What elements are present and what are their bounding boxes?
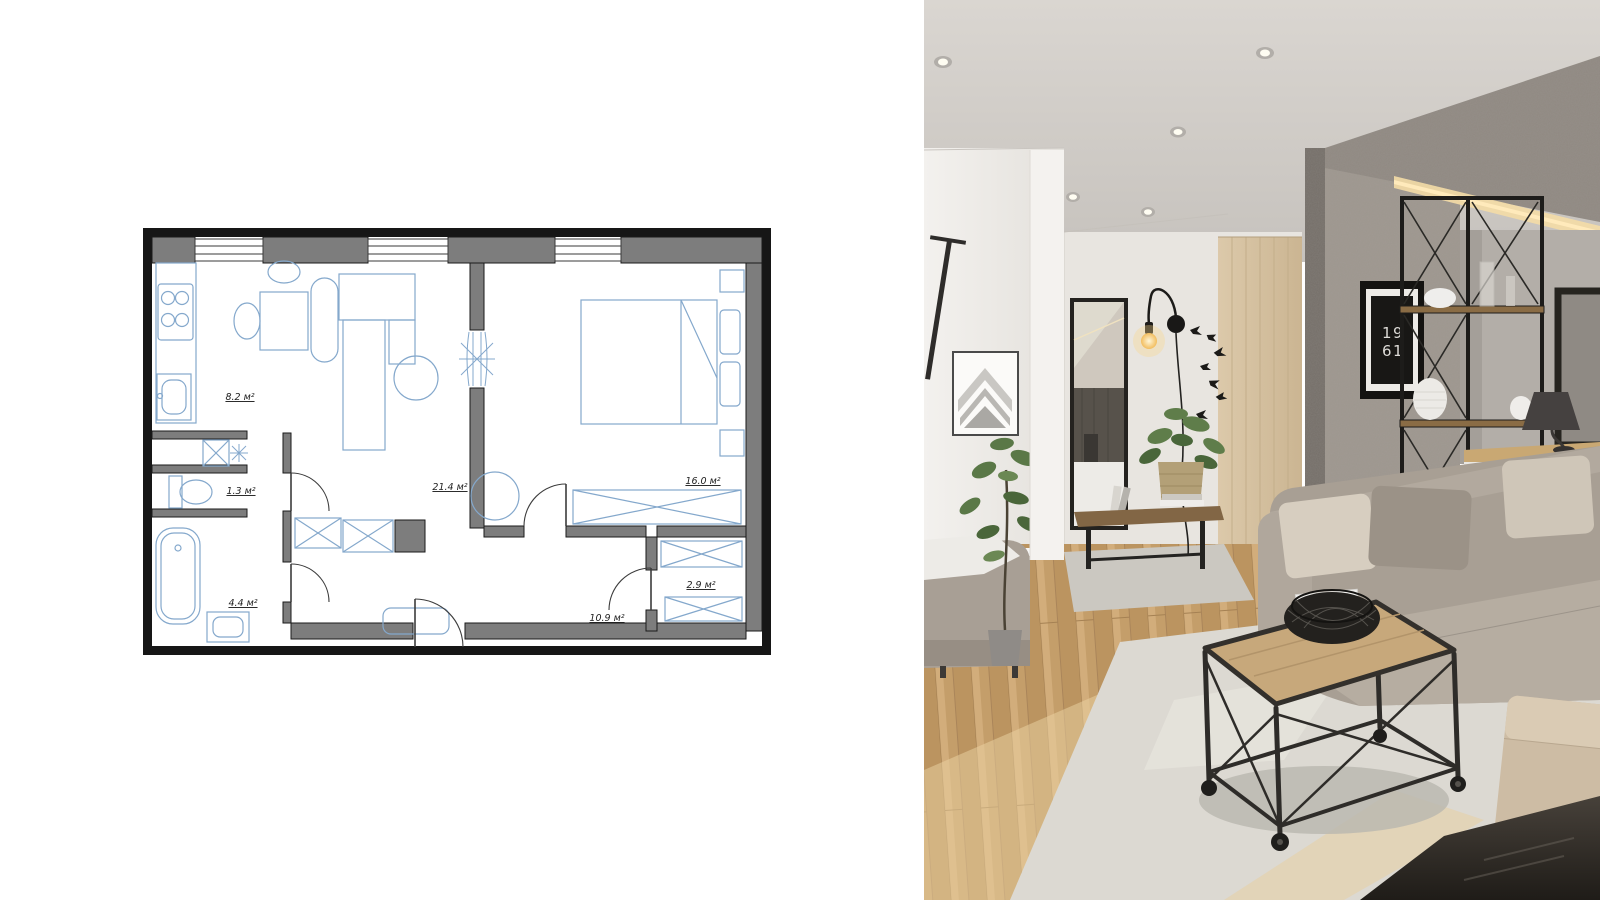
label-living-area: 21.4 м² <box>432 482 467 493</box>
plan-background <box>143 228 772 656</box>
label-closet-area: 2.9 м² <box>686 580 715 591</box>
book-stack <box>1160 500 1204 506</box>
interior-photo-render: 19 61 <box>924 0 1600 900</box>
sculpture <box>1084 434 1098 462</box>
sofa-pillow <box>1278 493 1379 580</box>
glass-vase <box>1480 262 1494 306</box>
white-bowl <box>1424 288 1456 308</box>
bottle <box>1506 276 1515 306</box>
label-kitchen-area: 8.2 м² <box>225 392 254 403</box>
plant-pot <box>988 630 1022 666</box>
chevron-frame <box>953 352 1018 435</box>
ribbed-vase <box>1413 378 1447 420</box>
label-bathroom-area: 4.4 м² <box>228 598 257 609</box>
shelf-board <box>1400 420 1544 427</box>
door-jamb <box>1030 150 1064 560</box>
sofa-pillow <box>1368 485 1472 570</box>
page: 8.2 м² 1.3 м² 4.4 м² 21.4 м² 16.0 м² 2.9… <box>0 0 1600 900</box>
floor-plan-drawing: 8.2 м² 1.3 м² 4.4 м² 21.4 м² 16.0 м² 2.9… <box>143 228 772 656</box>
sofa-pillow <box>1501 455 1594 539</box>
shelf-board <box>1400 306 1544 313</box>
floor-plan-panel: 8.2 м² 1.3 м² 4.4 м² 21.4 м² 16.0 м² 2.9… <box>0 0 924 900</box>
label-wc-area: 1.3 м² <box>226 486 255 497</box>
label-hallway-area: 10.9 м² <box>589 613 624 624</box>
poster-1961: 19 61 <box>1360 281 1424 399</box>
bed <box>581 300 717 424</box>
table-shadow <box>1199 766 1449 834</box>
plan-windows <box>195 239 621 261</box>
back-wall-shadow <box>1460 230 1482 464</box>
wire-basket-bowl <box>1284 590 1380 644</box>
snowflake-icon <box>230 444 248 462</box>
hallway-carpet <box>1064 544 1254 612</box>
light-bulb <box>1141 333 1157 349</box>
interior-photo: 19 61 <box>924 0 1600 900</box>
book-stack <box>1162 494 1202 500</box>
label-bedroom-area: 16.0 м² <box>685 476 720 487</box>
